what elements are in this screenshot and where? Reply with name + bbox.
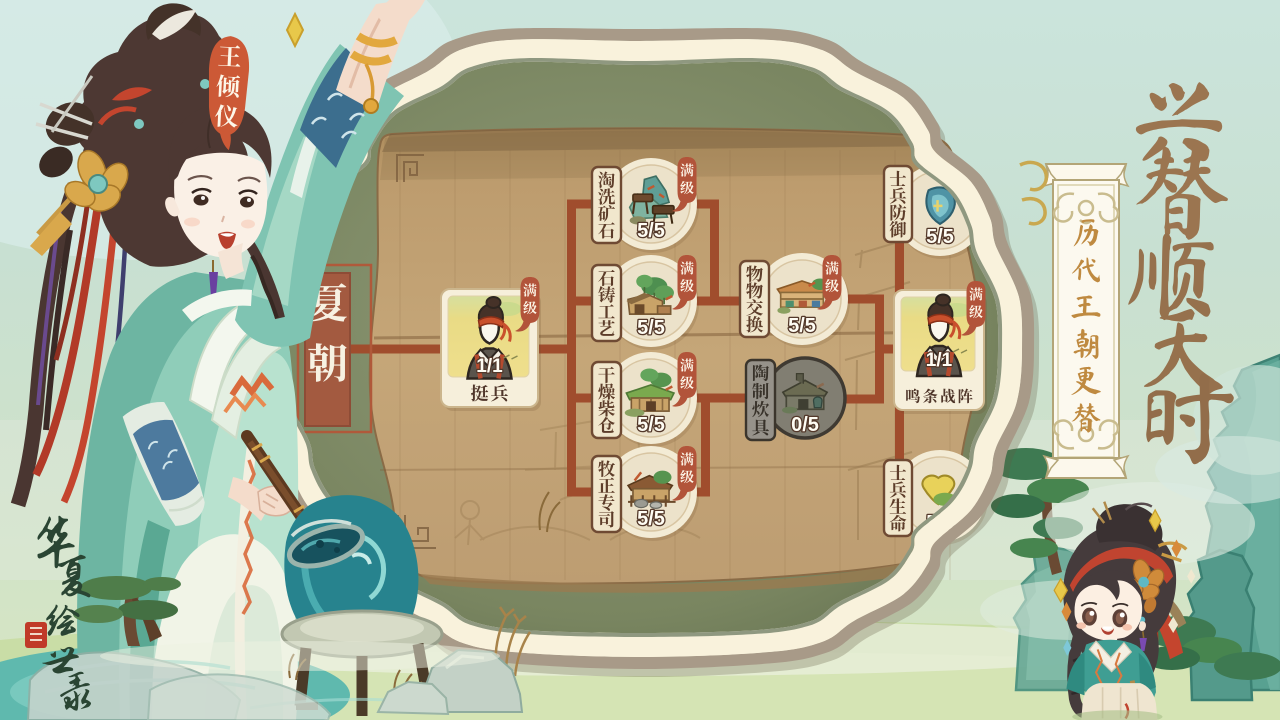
svg-text:1/1: 1/1 [476,356,503,377]
svg-text:0/5: 0/5 [791,414,819,436]
svg-text:5/5: 5/5 [788,315,816,337]
svg-text:1/1: 1/1 [926,350,953,371]
svg-text:5/5: 5/5 [637,508,665,530]
svg-text:5/5: 5/5 [637,317,665,339]
svg-text:5/5: 5/5 [637,220,665,242]
svg-text:5/5: 5/5 [926,226,954,248]
svg-text:5/5: 5/5 [637,414,665,436]
